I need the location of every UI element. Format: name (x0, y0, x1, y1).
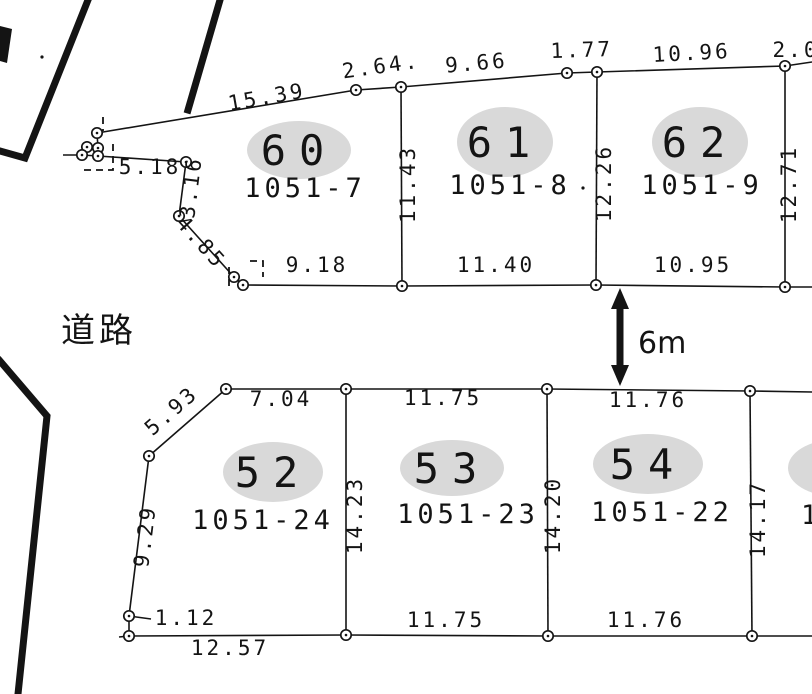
boundary-line (226, 389, 812, 392)
dimension-label: 12.26 (592, 144, 616, 222)
dimension-label: 11.76 (607, 608, 685, 632)
dimension-label: 5.18 (119, 155, 182, 179)
clipped-parcel-fragment: 1 (801, 500, 812, 531)
vertex-marker-dot (86, 146, 89, 149)
plot-number-60: 60 (261, 126, 338, 175)
vertex-marker-dot (355, 89, 358, 92)
road-edge-wedge (0, 26, 12, 63)
vertex-marker-dot (345, 388, 348, 391)
road-edge-line (0, 0, 88, 158)
dimension-label: 11.75 (407, 608, 485, 632)
road-edge-line (0, 361, 47, 694)
vertex-marker-dot (97, 147, 100, 150)
road-edge-line (188, 0, 220, 110)
cadastral-map: 15.392.64.9.661.7710.965.183.164.859.181… (0, 0, 812, 694)
dimension-label: 10.96 (652, 39, 731, 67)
plot-number-61: 61 (467, 118, 544, 167)
dimension-label: 2.64. (341, 49, 422, 84)
vertex-marker-dot (595, 284, 598, 287)
vertex-marker-dot (547, 635, 550, 638)
vertex-marker-dot (97, 155, 100, 158)
plot-number-62: 62 (662, 118, 739, 167)
parcel-number-62: 1051-9 (641, 170, 763, 201)
vertex-marker-dot (233, 276, 236, 279)
clipped-plot-ellipse (788, 440, 812, 496)
dimension-label: 15.39 (226, 78, 307, 115)
dimension-label: 11.76 (609, 388, 687, 412)
vertex-marker-dot (596, 71, 599, 74)
dimension-label: 11.43 (396, 145, 420, 223)
dimension-label: 5.93 (140, 381, 203, 440)
parcel-number-61: 1051-8 (449, 170, 571, 201)
vertex-marker-dot (784, 65, 787, 68)
vertex-marker-dot (128, 615, 131, 618)
road-width-arrowhead-up (611, 288, 629, 309)
road-width-label: 6m (638, 326, 686, 361)
dimension-label: 1.12 (155, 606, 218, 630)
vertex-marker-dot (242, 284, 245, 287)
vertex-marker-dot (566, 72, 569, 75)
dimension-label: 12.57 (191, 636, 269, 660)
plot-number-52: 52 (235, 448, 312, 497)
parcel-number-53: 1051-23 (397, 499, 539, 530)
road-width-arrowhead-down (611, 365, 629, 386)
vertex-marker-dot (81, 154, 84, 157)
boundary-line (243, 285, 812, 287)
dimension-label: 14.23 (343, 476, 367, 554)
dimension-label: 9.66 (444, 48, 508, 77)
parcel-number-60: 1051-7 (244, 173, 366, 204)
parcel-number-52: 1051-24 (192, 505, 334, 536)
dimension-label: 9.29 (129, 504, 160, 569)
dimension-label: 10.95 (654, 253, 732, 277)
vertex-marker-dot (96, 132, 99, 135)
dimension-label: 11.40 (457, 253, 535, 277)
vertex-marker-dot (751, 635, 754, 638)
dimension-label: 7.04 (250, 387, 313, 411)
dimension-label: 14.20 (541, 476, 565, 554)
parcel-number-54: 1051-22 (591, 497, 733, 528)
dimension-label: 11.75 (404, 386, 482, 410)
clipped-dimension-label: 2.0 (773, 38, 812, 62)
vertex-marker-dot (148, 455, 151, 458)
vertex-marker-dot (345, 634, 348, 637)
dimension-label: 12.71 (777, 145, 801, 223)
scan-speck (40, 55, 43, 58)
offset-mark (250, 261, 263, 277)
vertex-marker-dot (128, 635, 131, 638)
vertex-marker-dot (784, 286, 787, 289)
dimension-label: 14.17 (746, 480, 770, 558)
vertex-marker-dot (749, 390, 752, 393)
vertex-marker-dot (401, 285, 404, 288)
vertex-marker-dot (225, 388, 228, 391)
plot-number-54: 54 (610, 440, 687, 489)
dimension-label: 4.85 (171, 211, 231, 274)
vertex-marker-dot (546, 388, 549, 391)
road-label: 道路 (61, 303, 137, 352)
vertex-marker-dot (400, 86, 403, 89)
dimension-label: 9.18 (286, 253, 349, 277)
scan-speck (581, 186, 584, 189)
dimension-label: 1.77 (550, 37, 613, 63)
plot-number-53: 53 (414, 444, 491, 493)
